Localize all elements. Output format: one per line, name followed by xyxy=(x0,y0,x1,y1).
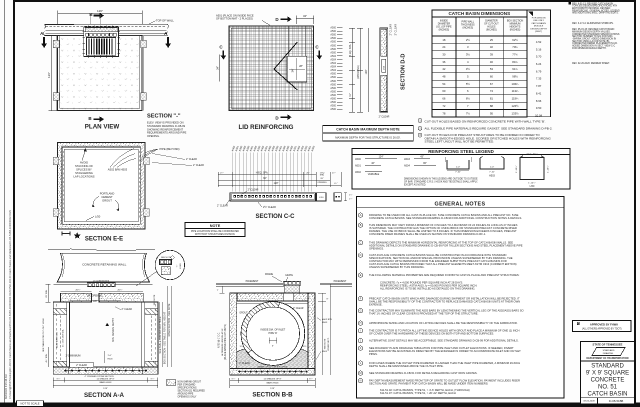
svg-text:1'-0": 1'-0" xyxy=(108,355,112,357)
svg-text:REQUIREMENTS AROUND PIPE: REQUIREMENTS AROUND PIPE xyxy=(147,131,187,135)
svg-text:3½: 3½ xyxy=(466,52,471,56)
svg-text:2" CLEAR: 2" CLEAR xyxy=(193,164,204,167)
svg-text:22" 1'-10¾": 22" 1'-10¾" xyxy=(526,153,537,156)
svg-text:2" CLEAR: 2" CLEAR xyxy=(390,24,393,36)
svg-text:APPROPRIATE SIZING AND LOCATIO: APPROPRIATE SIZING AND LOCATION OF LIFTI… xyxy=(369,321,518,325)
svg-text:SECTION C-C: SECTION C-C xyxy=(256,214,296,220)
svg-text:7'-10": 7'-10" xyxy=(455,172,461,174)
svg-text:9.50: 9.50 xyxy=(536,106,542,110)
svg-text:41": 41" xyxy=(349,93,352,97)
svg-text:GRATE: GRATE xyxy=(285,274,293,277)
svg-text:APPROVED BY FHWA: APPROVED BY FHWA xyxy=(590,322,618,326)
svg-text:SECTION "-": SECTION "-" xyxy=(147,114,181,120)
svg-text:REV. 02-26-2020: REDREW SHEET.: REV. 02-26-2020: REDREW SHEET. xyxy=(572,63,610,65)
svg-text:2" CLEAR: 2" CLEAR xyxy=(293,307,304,310)
svg-text:72: 72 xyxy=(442,104,446,108)
svg-text:H503: H503 xyxy=(489,175,495,178)
svg-text:AVOID: AVOID xyxy=(80,160,88,164)
svg-text:BARS H503: BARS H503 xyxy=(267,381,280,384)
svg-text:81: 81 xyxy=(490,97,494,101)
svg-text:24: 24 xyxy=(442,45,446,49)
svg-text:FOR DESIGN: FOR DESIGN xyxy=(532,18,546,20)
svg-text:5½: 5½ xyxy=(466,82,471,86)
svg-text:7.87: 7.87 xyxy=(536,84,542,88)
svg-text:H503: H503 xyxy=(108,358,114,360)
svg-text:DEPTH SHALL BE MAINTAINED ABOV: DEPTH SHALL BE MAINTAINED ABOVE THE OUTL… xyxy=(369,364,444,368)
svg-text:48: 48 xyxy=(442,75,446,79)
svg-text:CONCRETE: CONCRETE xyxy=(591,378,625,384)
svg-text:25: 25 xyxy=(490,38,494,42)
svg-text:D-CB-51BB: D-CB-51BB xyxy=(609,399,624,403)
svg-text:SEE TABLE FOR CUT-OUT HOLE: SEE TABLE FOR CUT-OUT HOLE xyxy=(42,318,45,352)
svg-text:39: 39 xyxy=(490,52,494,56)
svg-text:A500: A500 xyxy=(330,37,336,40)
svg-text:98½: 98½ xyxy=(512,75,518,79)
svg-text:12 SPACES OF 8": 12 SPACES OF 8" xyxy=(97,377,115,380)
svg-text:ALTERNATIVE JOINT DETAILS MAY: ALTERNATIVE JOINT DETAILS MAY BE ACCEPTA… xyxy=(369,339,519,343)
svg-text:8.41: 8.41 xyxy=(536,91,542,95)
svg-text:(INCHES): (INCHES) xyxy=(439,28,450,31)
svg-text:3" CLEAR: 3" CLEAR xyxy=(395,24,398,36)
svg-text:74: 74 xyxy=(490,89,494,93)
svg-text:THAT 1½ INCHES OF CLEAR COVER: THAT 1½ INCHES OF CLEAR COVER IS PROVIDE… xyxy=(369,312,479,316)
svg-text:126": 126" xyxy=(47,72,51,78)
svg-text:29" MIN.: 29" MIN. xyxy=(46,289,48,298)
svg-text:5.16: 5.16 xyxy=(536,47,542,51)
svg-text:PLAN VIEW: PLAN VIEW xyxy=(85,124,120,131)
svg-text:L/50: L/50 xyxy=(95,215,101,219)
svg-text:SEE NOTE: SEE NOTE xyxy=(325,338,327,349)
svg-text:36: 36 xyxy=(442,60,446,64)
svg-text:SHALL BE THE RESPONSIBILITY OF: SHALL BE THE RESPONSIBILITY OF THE CONTR… xyxy=(369,300,520,304)
svg-text:ADDITIONAL DETAILS ON STANDARD: ADDITIONAL DETAILS ON STANDARD DRAWING D… xyxy=(369,244,523,248)
svg-text:DESIGN DEPTH: DESIGN DEPTH xyxy=(530,28,547,30)
svg-text:GROUT: GROUT xyxy=(239,313,248,315)
svg-text:1'-0": 1'-0" xyxy=(490,166,495,168)
svg-text:C: C xyxy=(360,242,362,245)
svg-text:CUT-OUT HOLES BASED ON REINFOR: CUT-OUT HOLES BASED ON REINFORCED CONCRE… xyxy=(425,119,546,123)
svg-text:12 SPACES OF 8": 12 SPACES OF 8" xyxy=(264,378,282,381)
svg-text:30: 30 xyxy=(442,52,446,56)
svg-text:STANDARD DRAWING D-CB-99: STANDARD DRAWING D-CB-99 xyxy=(147,124,186,128)
svg-text:A504: A504 xyxy=(404,164,410,167)
svg-text:A500: A500 xyxy=(330,80,336,83)
svg-text:USE ONLY: USE ONLY xyxy=(533,20,544,22)
svg-text:SECTION 621 REQUIRED: SECTION 621 REQUIRED xyxy=(178,391,206,393)
svg-text:(BASED ON 12:1 SIDE SLOPES): (BASED ON 12:1 SIDE SLOPES) xyxy=(258,365,288,368)
svg-text:128": 128" xyxy=(274,182,279,185)
svg-text:08-06-2008: 08-06-2008 xyxy=(583,401,595,403)
svg-text:4 EQ. SPA.: 4 EQ. SPA. xyxy=(349,44,352,56)
svg-text:GROUT: GROUT xyxy=(102,199,112,203)
svg-text:A500: A500 xyxy=(330,41,336,44)
svg-text:2" CLEAR: 2" CLEAR xyxy=(122,308,133,311)
svg-text:A500: A500 xyxy=(330,34,336,37)
svg-text:PAVEMENT: PAVEMENT xyxy=(246,280,259,283)
svg-text:4.52: 4.52 xyxy=(536,40,542,44)
svg-text:34": 34" xyxy=(291,69,295,73)
svg-text:86": 86" xyxy=(423,162,427,165)
svg-text:62½: 62½ xyxy=(512,38,518,42)
svg-text:60": 60" xyxy=(263,177,267,180)
svg-text:1'-10¾": 1'-10¾" xyxy=(547,165,550,173)
svg-text:7": 7" xyxy=(217,290,219,292)
svg-text:1'-0": 1'-0" xyxy=(456,167,461,169)
svg-text:AROUND PIPE: AROUND PIPE xyxy=(178,393,194,396)
svg-text:UNLESS SUPERSEDED BY THIS DRAW: UNLESS SUPERSEDED BY THIS DRAWING. xyxy=(369,265,425,269)
svg-text:54: 54 xyxy=(442,82,446,86)
svg-text:43": 43" xyxy=(420,156,424,159)
svg-text:26": 26" xyxy=(320,178,323,180)
svg-text:A500: A500 xyxy=(330,48,336,51)
svg-text:(ALL OTHERS APPROVED BY TDOT): (ALL OTHERS APPROVED BY TDOT) xyxy=(582,327,622,330)
svg-text:A503: A503 xyxy=(404,158,410,161)
svg-text:H EQ. SPA.: H EQ. SPA. xyxy=(256,172,269,175)
svg-text:GENERAL NOTES: GENERAL NOTES xyxy=(435,202,486,208)
svg-text:128": 128" xyxy=(365,69,368,74)
svg-text:2½: 2½ xyxy=(466,38,471,42)
svg-text:2" CLEAR: 2" CLEAR xyxy=(379,116,390,119)
svg-text:18: 18 xyxy=(442,38,446,42)
svg-text:2'-1 MINIMUM: 2'-1 MINIMUM xyxy=(66,355,81,357)
svg-text:H: H xyxy=(360,322,362,325)
svg-text:84¾: 84¾ xyxy=(512,60,518,64)
svg-text:(INCHES): (INCHES) xyxy=(462,27,473,30)
svg-text:ALL FLEXIBLE PIPE MATERIALS RE: ALL FLEXIBLE PIPE MATERIALS REQUIRE GASK… xyxy=(425,126,553,130)
svg-text:ELEV. VIEW IS PROVIDED ON: ELEV. VIEW IS PROVIDED ON xyxy=(147,121,184,125)
svg-text:A500: A500 xyxy=(330,51,336,54)
svg-text:PIPES.: PIPES. xyxy=(369,352,378,356)
svg-text:SEE NOTE: SEE NOTE xyxy=(154,294,156,305)
svg-text:2" CLEAR: 2" CLEAR xyxy=(217,205,228,208)
svg-text:LID REINFORCING: LID REINFORCING xyxy=(239,124,294,131)
svg-text:SECTION B-B: SECTION B-B xyxy=(252,391,293,398)
svg-text:88: 88 xyxy=(490,104,494,108)
svg-text:PIPE (BEYOND): PIPE (BEYOND) xyxy=(160,147,180,151)
svg-text:53: 53 xyxy=(490,67,494,71)
svg-text:A700 @ 1' C.C.: A700 @ 1' C.C. xyxy=(217,332,220,348)
svg-text:SHOWING REINFORCEMENT: SHOWING REINFORCEMENT xyxy=(147,127,183,131)
svg-text:STACKING OF: STACKING OF xyxy=(75,164,93,168)
svg-text:A500: A500 xyxy=(330,44,336,47)
svg-text:OPENING: OPENING xyxy=(317,182,327,184)
svg-text:611-51.07: CATCH BASINS, TYP: 611-51.07: CATCH BASINS, TYPE 51, > 20'-… xyxy=(380,391,456,395)
svg-text:128": 128" xyxy=(103,388,108,390)
svg-text:FOR MINIMUM DESIGN DEPTH.: FOR MINIMUM DESIGN DEPTH. xyxy=(572,48,607,50)
svg-text:L/50: L/50 xyxy=(530,185,535,188)
svg-text:(FEET): (FEET) xyxy=(535,31,542,33)
svg-text:SECTION AND GRATE. PAYMENT FO: SECTION AND GRATE. PAYMENT FOR CATCH BAS… xyxy=(369,382,489,386)
svg-text:A502 B/W H503: A502 B/W H503 xyxy=(108,168,128,172)
svg-text:ALL REINFORCING IS TO BE INSTA: ALL REINFORCING IS TO BE INSTALLED AS DE… xyxy=(380,287,476,291)
svg-text:4½: 4½ xyxy=(466,67,471,71)
svg-text:A502: A502 xyxy=(355,171,361,174)
svg-text:77¾: 77¾ xyxy=(512,52,518,56)
svg-text:A502 B/W H503: A502 B/W H503 xyxy=(56,331,59,347)
svg-text:OPENING.: OPENING. xyxy=(147,134,160,138)
svg-text:1¾": 1¾" xyxy=(349,194,353,197)
svg-text:LAP LOCATIONS: LAP LOCATIONS xyxy=(73,174,94,178)
svg-text:VARIABLE: VARIABLE xyxy=(368,173,380,176)
svg-text:C:\Users\jj00547\Desktop\10-10: C:\Users\jj00547\Desktop\10-102.00 Catch… xyxy=(9,210,12,399)
svg-text:PIPE LOCATIONS SHALL BE COORDI: PIPE LOCATIONS SHALL BE COORDINATED xyxy=(191,230,239,233)
svg-text:2" CLEAR: 2" CLEAR xyxy=(248,189,259,192)
svg-text:NON-SHRINK GROUT: NON-SHRINK GROUT xyxy=(178,382,202,384)
svg-text:A500: A500 xyxy=(330,108,336,111)
svg-text:32: 32 xyxy=(490,45,494,49)
svg-text:28": 28" xyxy=(299,64,303,68)
svg-text:42: 42 xyxy=(442,67,446,71)
svg-text:CATCH BASIN: CATCH BASIN xyxy=(588,392,628,398)
svg-text:ELEVATIONS MAY BE ADJUSTED AS: ELEVATIONS MAY BE ADJUSTED AS DIRECTED B… xyxy=(369,349,521,353)
svg-text:N: N xyxy=(360,380,362,383)
svg-text:108": 108" xyxy=(93,301,98,303)
svg-text:128": 128" xyxy=(270,388,275,390)
svg-text:STANDARD: STANDARD xyxy=(591,363,624,369)
svg-text:A504: A504 xyxy=(330,66,336,69)
svg-text:CATCH BASIN DIMENSIONS: CATCH BASIN DIMENSIONS xyxy=(448,11,510,16)
svg-text:(INCHES): (INCHES) xyxy=(486,28,497,31)
svg-text:RISER SECT.: RISER SECT. xyxy=(328,337,330,350)
svg-text:LONG: LONG xyxy=(180,263,182,269)
svg-text:34": 34" xyxy=(303,14,307,18)
svg-text:NOT TO SCALE: NOT TO SCALE xyxy=(21,402,40,406)
svg-text:MIN. DESIGN DEPTH: MIN. DESIGN DEPTH xyxy=(112,318,115,342)
svg-text:67: 67 xyxy=(490,82,494,86)
svg-text:A500: A500 xyxy=(330,76,336,79)
svg-text:DEPARTMENT OF TRANSPORTATION: DEPARTMENT OF TRANSPORTATION xyxy=(587,357,629,360)
svg-text:26¼": 26¼" xyxy=(75,289,80,292)
svg-text:SEE NOTE: SEE NOTE xyxy=(161,257,172,259)
svg-text:SECTION D-D: SECTION D-D xyxy=(401,54,407,90)
svg-text:119¾: 119¾ xyxy=(512,97,519,101)
svg-text:PIPE 'D': PIPE 'D' xyxy=(269,332,278,335)
svg-text:OF BOTTOM MAT - 2 PLACES): OF BOTTOM MAT - 2 PLACES) xyxy=(216,17,253,21)
svg-text:A502 B/W: A502 B/W xyxy=(322,318,333,321)
svg-text:DRAWING: DRAWING xyxy=(603,352,614,355)
svg-text:EXCEPT AS NOTED.: EXCEPT AS NOTED. xyxy=(404,183,426,186)
svg-text:FRAME: FRAME xyxy=(265,273,274,276)
svg-text:CONCRETE CATCH BASINS. SEE ST: CONCRETE CATCH BASINS. SEE STANDARD DRAW… xyxy=(369,216,522,220)
svg-text:BARS H503: BARS H503 xyxy=(100,381,113,384)
svg-text:46: 46 xyxy=(490,60,494,64)
svg-text:AND ADDITIONAL MISC. DRAFTING: AND ADDITIONAL MISC. DRAFTING EDITS. xyxy=(572,12,619,15)
svg-text:A500: A500 xyxy=(330,87,336,90)
svg-text:OF BAR. STANDARD C.R.S.I. HOOK: OF BAR. STANDARD C.R.S.I. HOOK AND TIE D… xyxy=(404,180,478,183)
svg-text:CEMENT: CEMENT xyxy=(101,195,113,199)
svg-text:9' X 9' SQUARE: 9' X 9' SQUARE xyxy=(586,370,629,376)
svg-text:(INCHES): (INCHES) xyxy=(510,28,521,31)
svg-text:7'-10": 7'-10" xyxy=(489,172,495,174)
svg-text:STEEL LEFT UNCUT WILL NOT BE P: STEEL LEFT UNCUT WILL NOT BE PERMITTED. xyxy=(425,140,495,144)
svg-text:MAXIMUM DEPTH FOR THIS STRUCTU: MAXIMUM DEPTH FOR THIS STRUCTURE IS 26.0… xyxy=(335,135,401,139)
svg-text:A500: A500 xyxy=(330,105,336,108)
svg-text:A501: A501 xyxy=(355,164,361,167)
svg-text:D = CUT-OUT DIA.: D = CUT-OUT DIA. xyxy=(62,329,65,347)
svg-text:113¼: 113¼ xyxy=(512,89,519,93)
svg-text:SPLICES BY: SPLICES BY xyxy=(76,167,92,171)
svg-text:WITH TDOT STRUCTURES DIVISION.: WITH TDOT STRUCTURES DIVISION. xyxy=(195,234,236,236)
svg-text:78: 78 xyxy=(442,111,446,115)
svg-text:6": 6" xyxy=(272,345,274,347)
svg-text:CONCRETE RISER FRAMES SHALL BE: CONCRETE RISER FRAMES SHALL BE USED AS S… xyxy=(369,232,486,236)
svg-text:54" OPENING: 54" OPENING xyxy=(88,295,103,297)
svg-text:60: 60 xyxy=(490,75,494,79)
svg-text:STAGGERING: STAGGERING xyxy=(75,171,93,175)
svg-text:133½: 133½ xyxy=(512,111,520,115)
svg-text:8.96: 8.96 xyxy=(536,99,542,103)
svg-text:PAVEMENT: PAVEMENT xyxy=(334,280,347,283)
svg-text:60: 60 xyxy=(442,89,446,93)
svg-text:A500: A500 xyxy=(355,158,361,161)
svg-text:SECTION E-E: SECTION E-E xyxy=(85,237,123,243)
svg-text:PER STANDARD: PER STANDARD xyxy=(178,384,196,387)
svg-text:26": 26" xyxy=(306,173,309,175)
svg-text:5.70: 5.70 xyxy=(536,55,542,59)
svg-text:CATCH BASIN MAXIMUM DEPTH NOTE: CATCH BASIN MAXIMUM DEPTH NOTE xyxy=(336,128,400,132)
svg-text:66: 66 xyxy=(442,97,446,101)
svg-text:TOP OF WALL: TOP OF WALL xyxy=(156,18,174,22)
svg-text:46": 46" xyxy=(371,162,375,165)
svg-text:A500: A500 xyxy=(330,94,336,97)
svg-text:124": 124" xyxy=(379,156,384,159)
svg-text:CATCH BASIN: CATCH BASIN xyxy=(531,22,546,25)
svg-text:BOX SECTION - SEE TABLE FOR MI: BOX SECTION - SEE TABLE FOR MIN. HEIGHT xyxy=(163,311,166,364)
svg-text:CONCRETE RETAINING WALL: CONCRETE RETAINING WALL xyxy=(82,262,126,266)
svg-text:2" CLEAR: 2" CLEAR xyxy=(186,158,197,161)
svg-text:6.79: 6.79 xyxy=(536,69,542,73)
svg-text:6½: 6½ xyxy=(466,97,471,101)
svg-text:A504: A504 xyxy=(330,62,336,65)
svg-text:26¼": 26¼" xyxy=(117,289,122,292)
svg-text:126": 126" xyxy=(97,9,103,13)
svg-text:M: M xyxy=(360,372,362,375)
svg-text:10.04: 10.04 xyxy=(535,113,542,117)
svg-text:A504: A504 xyxy=(330,55,336,58)
svg-text:8/20/2020 9:15:48 AM: 8/20/2020 9:15:48 AM xyxy=(5,375,8,399)
svg-text:ALTERNATE LENGTH AT 90°: ALTERNATE LENGTH AT 90° xyxy=(221,328,224,356)
svg-text:MODULE: MODULE xyxy=(534,26,544,28)
svg-text:91¾: 91¾ xyxy=(512,67,518,71)
svg-text:REINFORCING STEEL LEGEND: REINFORCING STEEL LEGEND xyxy=(428,149,494,154)
svg-text:34": 34" xyxy=(215,66,219,70)
svg-text:95: 95 xyxy=(490,111,494,115)
svg-text:A500: A500 xyxy=(330,101,336,104)
svg-text:70¼: 70¼ xyxy=(512,45,518,49)
svg-text:A500: A500 xyxy=(330,30,336,33)
svg-text:NOTE: NOTE xyxy=(210,224,221,228)
svg-text:A504: A504 xyxy=(330,58,336,61)
svg-text:A500: A500 xyxy=(330,27,336,30)
svg-text:SPA.: SPA. xyxy=(320,174,325,177)
svg-text:STANDARD: STANDARD xyxy=(603,349,615,352)
svg-text:OPENINGS.: OPENINGS. xyxy=(369,247,384,251)
svg-text:STATE OF TENNESSEE: STATE OF TENNESSEE xyxy=(593,343,623,347)
svg-text:2" CLEAR: 2" CLEAR xyxy=(239,362,250,365)
svg-text:A500: A500 xyxy=(330,73,336,76)
svg-text:OPENINGS ONLY: OPENINGS ONLY xyxy=(178,397,197,399)
svg-text:6.24: 6.24 xyxy=(536,62,542,66)
svg-text:2½" CLEAR: 2½" CLEAR xyxy=(263,205,276,209)
svg-text:(2) CURB BOXES: (2) CURB BOXES xyxy=(93,281,110,283)
svg-text:THE FOLLOWING MATERIAL PROPERT: THE FOLLOWING MATERIAL PROPERTIES ARE RE… xyxy=(369,273,520,277)
svg-text:DIMENSIONS SHOWN IN THIS LEGEN: DIMENSIONS SHOWN IN THIS LEGEND ARE OUTS… xyxy=(404,178,478,181)
svg-text:2" CLEAR: 2" CLEAR xyxy=(76,364,87,367)
svg-text:A504: A504 xyxy=(330,69,336,72)
svg-text:G: G xyxy=(360,310,362,313)
svg-text:EXPENSE.: EXPENSE. xyxy=(369,303,383,307)
svg-text:A500: A500 xyxy=(330,83,336,86)
svg-text:8": 8" xyxy=(327,299,329,301)
svg-text:SPECIFICATIONS: SPECIFICATIONS xyxy=(178,387,197,390)
svg-text:1'-10¾": 1'-10¾" xyxy=(515,165,518,173)
svg-text:SEE STANDARD DRAWING D-CB-51 F: SEE STANDARD DRAWING D-CB-51 FOR DETAILS… xyxy=(369,371,478,375)
svg-text:REV. 3-17-14: ELIMINATED STIRR: REV. 3-17-14: ELIMINATED STIRRUPS. xyxy=(572,22,614,25)
svg-text:OF COVER OVER THE HARDWARE OF: OF COVER OVER THE HARDWARE OF THESE DEVI… xyxy=(369,332,494,336)
svg-text:D: D xyxy=(360,254,362,257)
svg-text:A500: A500 xyxy=(330,98,336,101)
svg-text:A500: A500 xyxy=(330,90,336,93)
svg-text:106¼: 106¼ xyxy=(512,82,520,86)
svg-text:126½: 126½ xyxy=(512,104,520,108)
svg-text:7.35: 7.35 xyxy=(536,77,542,81)
svg-text:(PLACE ABOVE PIPE CUT-OUTS): (PLACE ABOVE PIPE CUT-OUTS) xyxy=(224,324,227,360)
svg-text:PORTLAND: PORTLAND xyxy=(100,192,115,196)
svg-text:RISER SECTION - SEE NOTE: RISER SECTION - SEE NOTE xyxy=(168,303,171,336)
svg-text:NO. 51: NO. 51 xyxy=(598,385,618,391)
svg-text:SECTION A-A: SECTION A-A xyxy=(84,392,125,399)
svg-text:7½: 7½ xyxy=(466,111,471,115)
svg-text:(WORKING): (WORKING) xyxy=(357,65,360,78)
